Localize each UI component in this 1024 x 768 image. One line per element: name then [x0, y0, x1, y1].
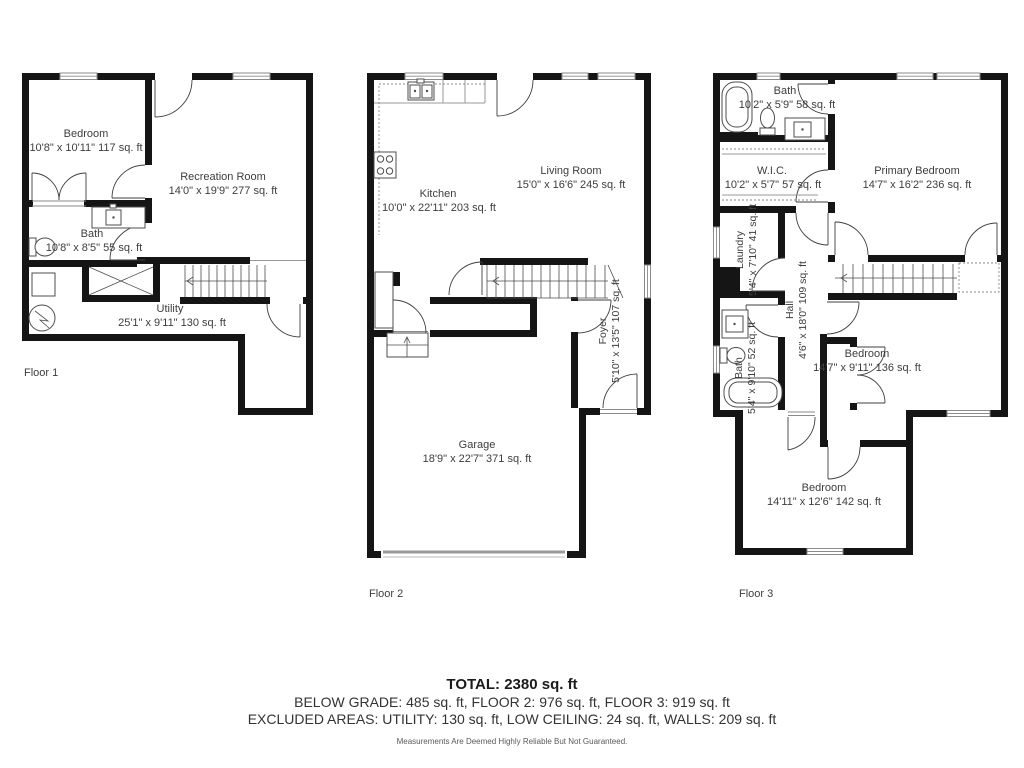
floor-1-plan: Bedroom 10'8" x 10'11" 117 sq. ft Recrea… — [20, 70, 315, 420]
room-label: W.I.C. — [757, 165, 787, 177]
floor3-windows — [714, 73, 991, 555]
floor3-doors — [746, 84, 997, 479]
room-dims: 14'7" x 9'11" 136 sq. ft — [813, 362, 921, 374]
room-label: Hall — [784, 301, 796, 319]
room-label: Bedroom — [845, 348, 890, 360]
floor3-walls — [713, 73, 1008, 555]
room-label: Bath — [733, 357, 745, 379]
floor2-walls — [367, 73, 651, 558]
room-label: Recreation Room — [180, 171, 266, 183]
low-ceiling-area — [959, 263, 999, 292]
room-label: Bath — [81, 228, 104, 240]
total-area-text: TOTAL: 2380 sq. ft — [0, 676, 1024, 693]
room-dims: 5'4" x 9'10" 52 sq. ft — [746, 322, 758, 414]
floor1-stairs — [185, 265, 267, 297]
toilet-fixture — [760, 108, 775, 135]
room-label: Laundry — [734, 230, 746, 269]
floor-areas-text: BELOW GRADE: 485 sq. ft, FLOOR 2: 976 sq… — [0, 694, 1024, 710]
room-dims: 5'10" x 13'5" 107 sq. ft — [610, 279, 622, 383]
kitchen-sink-fixture — [408, 79, 434, 100]
room-dims: 5'4" x 7'10" 41 sq. ft — [747, 204, 759, 296]
room-label: Bedroom — [64, 128, 109, 140]
room-dims: 14'0" x 19'9" 277 sq. ft — [169, 185, 278, 197]
low-ceiling-closet — [89, 267, 153, 295]
room-label: Garage — [459, 439, 496, 451]
room-dims: 14'7" x 16'2" 236 sq. ft — [863, 179, 972, 191]
floor-3-plan: Bath 10'2" x 5'9" 58 sq. ft W.I.C. 10'2"… — [710, 70, 1010, 560]
floor-1-caption: Floor 1 — [24, 367, 58, 379]
floor2-stairs — [487, 265, 623, 298]
room-dims: 4'6" x 18'0" 109 sq. ft — [797, 261, 809, 359]
room-dims: 10'2" x 5'9" 58 sq. ft — [739, 99, 835, 111]
room-label: Foyer — [597, 317, 609, 344]
water-heater-fixture — [29, 305, 55, 331]
floor-3-caption: Floor 3 — [739, 588, 773, 600]
room-dims: 10'0" x 22'11" 203 sq. ft — [382, 202, 496, 214]
garage-door — [381, 549, 567, 559]
room-dims: 15'0" x 16'6" 245 sq. ft — [517, 179, 626, 191]
bath-vanity-fixture — [785, 118, 825, 140]
excluded-areas-text: EXCLUDED AREAS: UTILITY: 130 sq. ft, LOW… — [0, 711, 1024, 727]
bath-vanity-fixture — [92, 204, 145, 228]
room-dims: 18'9" x 22'7" 371 sq. ft — [423, 453, 532, 465]
room-label: Kitchen — [420, 188, 457, 200]
washer-fixture — [32, 273, 55, 296]
room-dims: 10'2" x 5'7" 57 sq. ft — [725, 179, 821, 191]
floor2-labels: Kitchen 10'0" x 22'11" 203 sq. ft Living… — [382, 165, 625, 465]
room-dims: 10'8" x 10'11" 117 sq. ft — [29, 142, 142, 154]
floor1-fixtures — [29, 204, 153, 331]
floor-2-caption: Floor 2 — [369, 588, 403, 600]
room-label: Living Room — [540, 165, 601, 177]
bath2-vanity-fixture — [722, 310, 748, 338]
floor2-doors — [393, 72, 637, 416]
room-dims: 14'11" x 12'6" 142 sq. ft — [767, 496, 881, 508]
stove-fixture — [374, 152, 396, 178]
room-label: Utility — [157, 303, 184, 315]
room-label: Primary Bedroom — [874, 165, 960, 177]
room-label: Bedroom — [802, 482, 847, 494]
floor-2-plan: Kitchen 10'0" x 22'11" 203 sq. ft Living… — [365, 70, 655, 562]
room-dims: 10'8" x 8'5" 55 sq. ft — [46, 242, 142, 254]
floor3-stairs — [835, 263, 999, 293]
summary-footer: TOTAL: 2380 sq. ft BELOW GRADE: 485 sq. … — [0, 676, 1024, 746]
room-dims: 25'1" x 9'11" 130 sq. ft — [118, 317, 226, 329]
room-label: Bath — [774, 85, 797, 97]
disclaimer-text: Measurements Are Deemed Highly Reliable … — [0, 737, 1024, 746]
